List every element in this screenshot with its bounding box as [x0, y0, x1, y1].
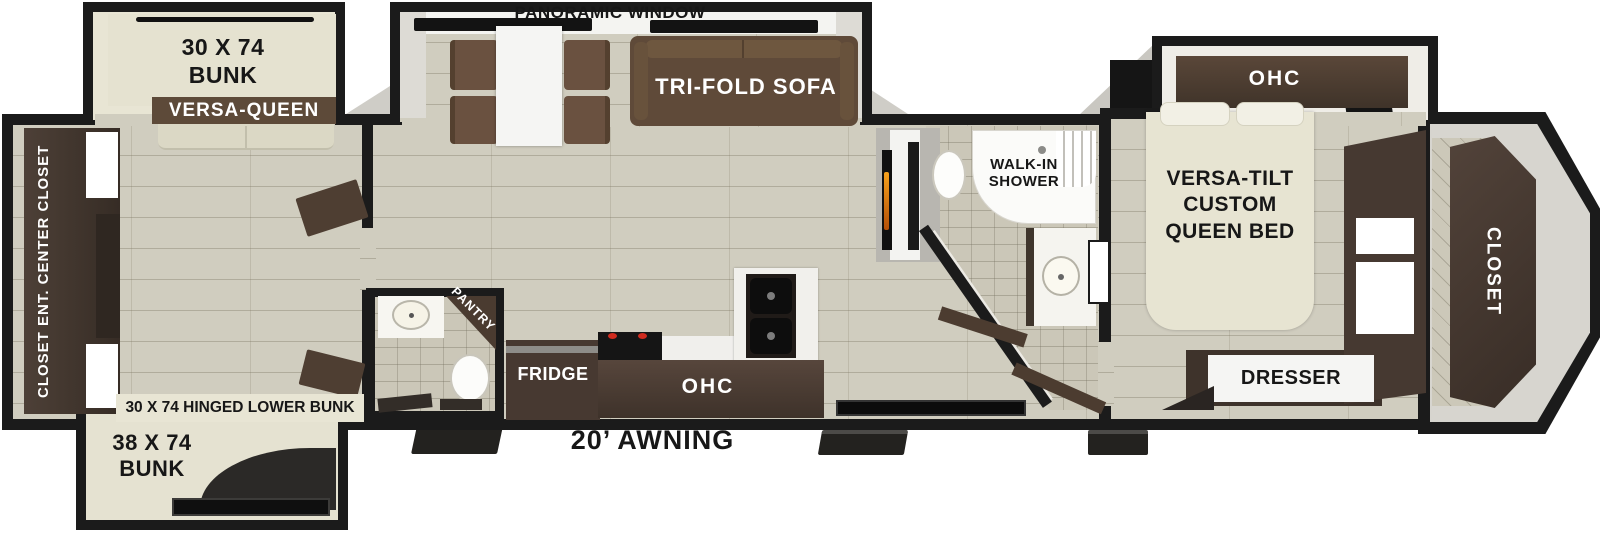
wardrobe-opening	[1356, 262, 1414, 334]
awning-label: 20’ AWNING	[545, 424, 760, 456]
sofa-seam	[742, 40, 744, 58]
shower-drain	[1038, 146, 1046, 154]
fridge-top	[506, 346, 600, 353]
dresser-label: DRESSER	[1208, 355, 1374, 402]
front-closet-label: CLOSET	[1472, 200, 1512, 344]
fridge-label: FRIDGE	[506, 364, 600, 386]
bed-pillow	[1160, 102, 1230, 126]
queen-bed-label: VERSA-TILT CUSTOM QUEEN BED	[1146, 166, 1314, 245]
bath-vanity-edge	[1026, 228, 1034, 326]
sofa-armrest	[634, 42, 648, 120]
cabinet-door	[86, 132, 118, 198]
sink-drain	[767, 292, 775, 300]
cabinet-door	[86, 344, 118, 408]
entry-steps	[818, 430, 908, 455]
wardrobe-opening	[1356, 218, 1414, 254]
sink-drain	[1058, 274, 1064, 280]
closet-ent-center-label: CLOSET ENT. CENTER CLOSET	[26, 132, 62, 410]
hinged-bunk-label: 30 X 74 HINGED LOWER BUNK	[116, 394, 364, 422]
half-bath-step	[440, 399, 482, 410]
half-bath-toilet	[450, 354, 490, 402]
sink-drain	[767, 332, 775, 340]
rv-floorplan: CLOSET ENT. CENTER CLOSET 30 X 74 BUNK V…	[0, 0, 1600, 545]
kitchen-ohc-label: OHC	[648, 374, 768, 399]
exterior-trim	[346, 86, 390, 114]
sofa-seam	[245, 126, 247, 148]
entry-steps	[411, 426, 503, 454]
walk-in-shower-label: WALK-IN SHOWER	[966, 156, 1082, 191]
bed-pillow	[1236, 102, 1304, 126]
bedroom-ohc-label: OHC	[1215, 66, 1335, 91]
stove-burner	[608, 333, 617, 339]
cabinet-panel	[96, 214, 120, 338]
dinette-table	[496, 26, 562, 146]
bunk-tv	[172, 498, 330, 516]
entry-steps	[1088, 430, 1148, 455]
tv-screen	[908, 142, 919, 250]
dinette-chair	[564, 96, 610, 144]
bunk-headboard	[136, 17, 314, 22]
dinette-chair	[450, 96, 498, 144]
bunk-top-label: 30 X 74 BUNK	[128, 34, 318, 89]
bath-toilet	[932, 150, 966, 200]
entry-door-mat	[836, 400, 1026, 416]
doorway-gap	[1098, 342, 1114, 406]
bath-mirror-door	[1088, 240, 1110, 304]
sofa-back	[646, 40, 842, 58]
sink-drain	[409, 313, 414, 318]
tri-fold-sofa-label: TRI-FOLD SOFA	[648, 74, 844, 100]
lower-bunk-label: 38 X 74 BUNK	[94, 430, 210, 483]
dinette-chair	[450, 40, 498, 90]
stove-burner	[638, 333, 647, 339]
versa-queen-label: VERSA-QUEEN	[152, 97, 336, 124]
fireplace-flame	[884, 172, 889, 230]
kitchen-counter	[660, 336, 742, 362]
doorway-gap	[360, 228, 376, 290]
dinette-chair	[564, 40, 610, 90]
bedroom-side-window	[1110, 60, 1152, 108]
panoramic-window-label: PANORAMIC WINDOW	[480, 3, 740, 23]
